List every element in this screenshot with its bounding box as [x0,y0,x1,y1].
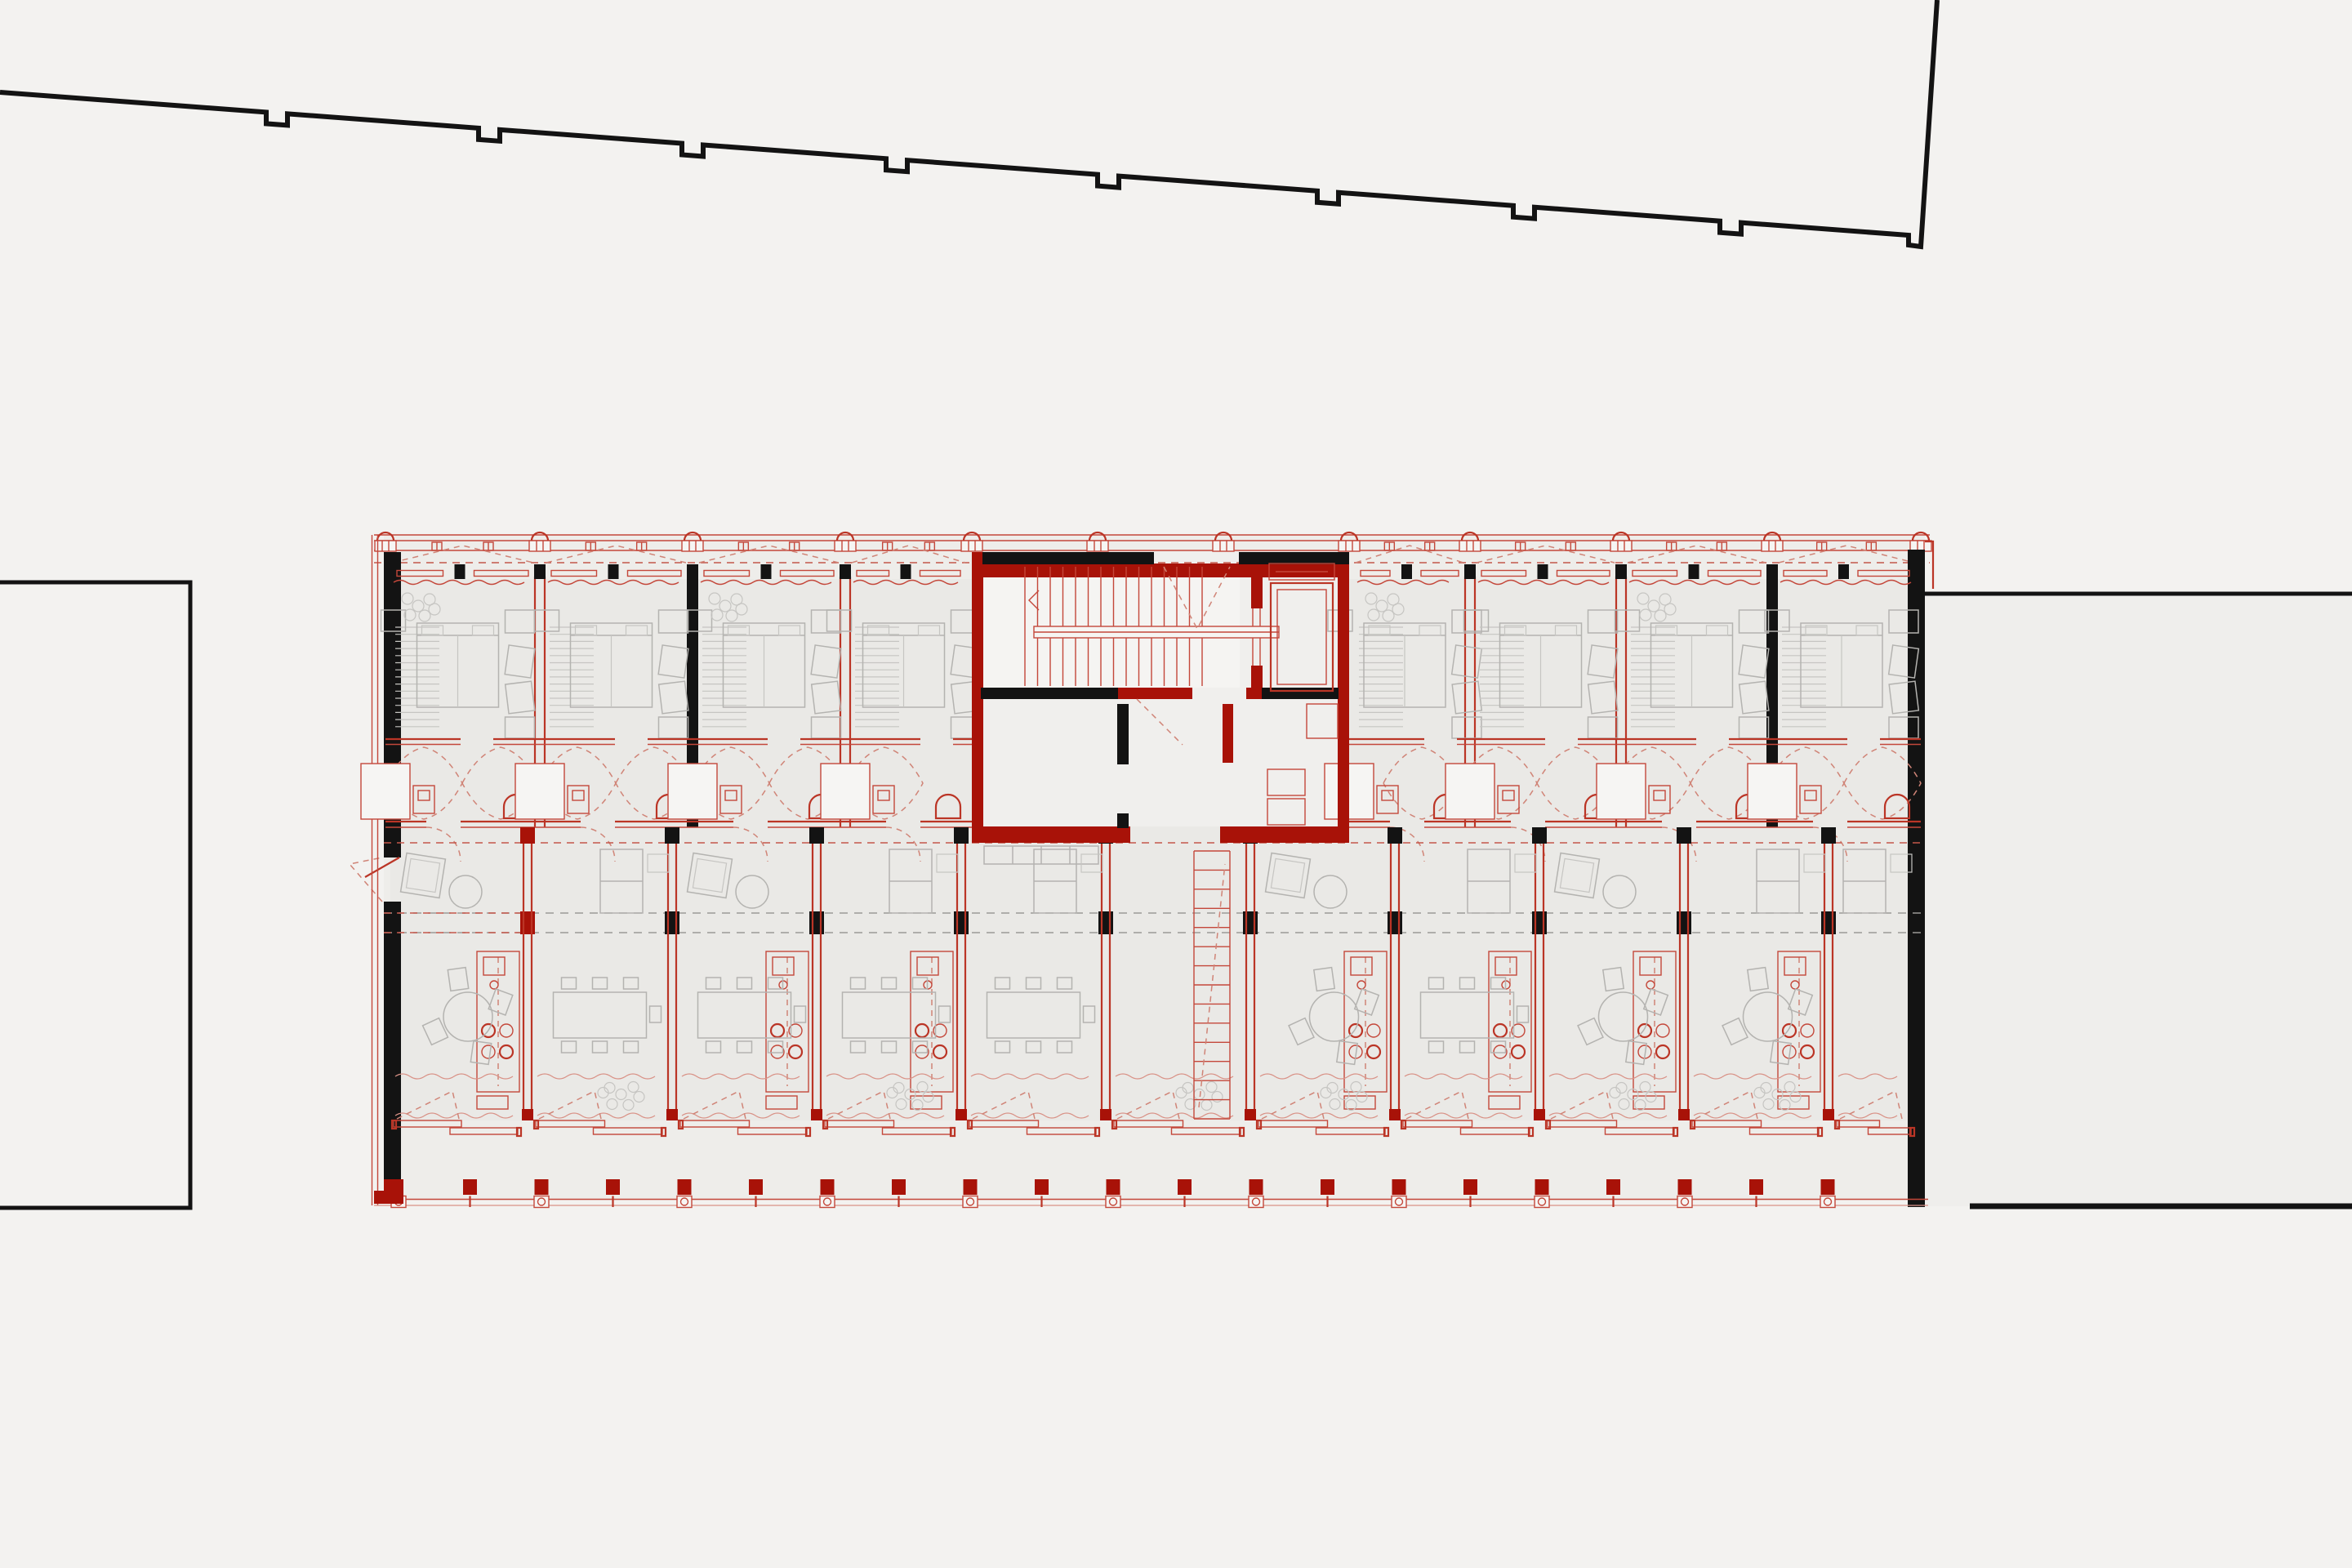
property-line [0,0,1937,247]
neighbor-building-right [1925,594,2352,1206]
floor-plan-drawing [0,0,2352,1568]
neighbor-building-left [0,582,190,1208]
site-boundary [0,0,1937,247]
floor-plan-sheet [0,0,2352,1568]
